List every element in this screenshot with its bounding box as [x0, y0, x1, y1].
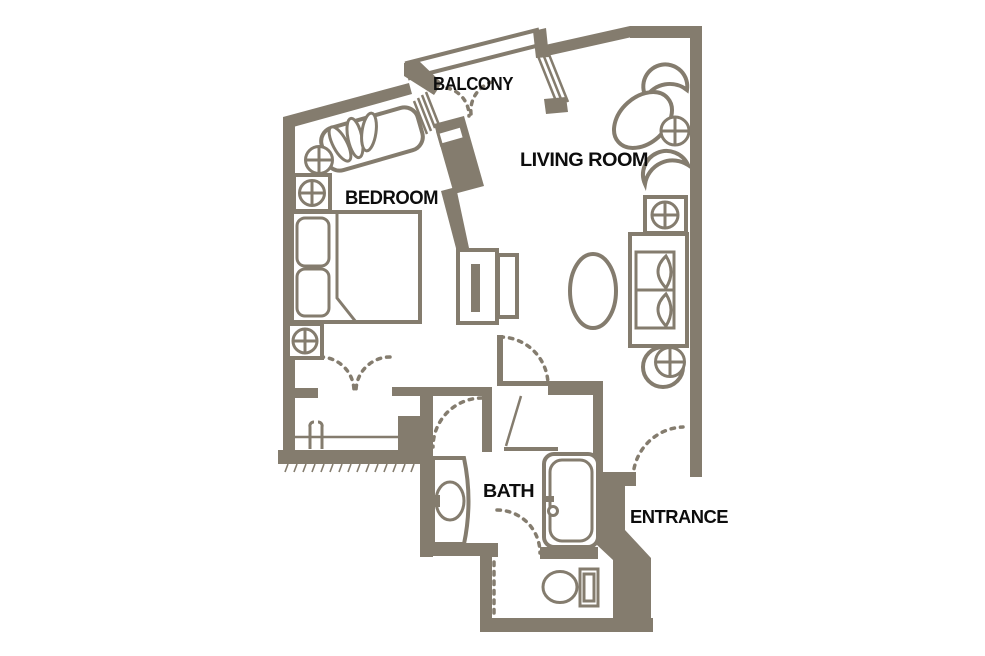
closet-wall-left [283, 388, 318, 398]
tub-faucet-icon [544, 496, 554, 502]
balcony-right-pier [533, 28, 549, 58]
toilet-door-swing [497, 510, 540, 553]
entrance-door-swing [633, 427, 683, 478]
lounge-chair [643, 151, 688, 184]
bath-lobby-door-swing [500, 337, 548, 385]
living-room-furniture [458, 64, 689, 387]
right-exterior-wall [690, 36, 702, 477]
bottom-left-exterior-wall [278, 450, 422, 464]
bath-funnel-wall [506, 396, 521, 446]
tub-drain-icon [549, 507, 558, 516]
window-sill-block [544, 97, 568, 114]
console-shelf [498, 255, 517, 317]
bath-label: BATH [483, 481, 534, 501]
pillow [297, 269, 329, 316]
partition-strip [441, 187, 469, 252]
bath-door-swing [433, 398, 482, 447]
bathtub-inner [550, 460, 592, 541]
bath-north-wall [548, 381, 603, 395]
floor-plan: BALCONY LIVING ROOM BEDROOM BATH ENTRANC… [0, 0, 985, 656]
top-right-angled-wall [545, 26, 632, 56]
living-room-label: LIVING ROOM [520, 150, 648, 171]
corridor-east-wall [482, 387, 492, 452]
toilet-bowl-icon [543, 572, 577, 603]
bedroom-label: BEDROOM [345, 188, 438, 209]
closet-wall-right [392, 387, 485, 396]
sink-icon [436, 482, 464, 520]
pillow [297, 218, 329, 266]
entrance-label: ENTRANCE [630, 507, 728, 527]
bedroom-door-swing-right [356, 357, 390, 391]
bedroom-door-swing-left [320, 357, 354, 391]
bath-door-header [497, 381, 548, 386]
entrance-wall-block [597, 472, 651, 632]
hangers-icon [310, 422, 322, 449]
balcony-label: BALCONY [433, 74, 513, 94]
floor-plan-svg: BALCONY LIVING ROOM BEDROOM BATH ENTRANC… [0, 0, 985, 656]
bath-fixtures [432, 454, 598, 606]
exterior-hatching [285, 464, 414, 472]
tv-icon [471, 264, 480, 312]
bath-lobby-door-leaf [497, 335, 503, 385]
coffee-table [570, 254, 616, 328]
sink-faucet-icon [432, 495, 440, 507]
